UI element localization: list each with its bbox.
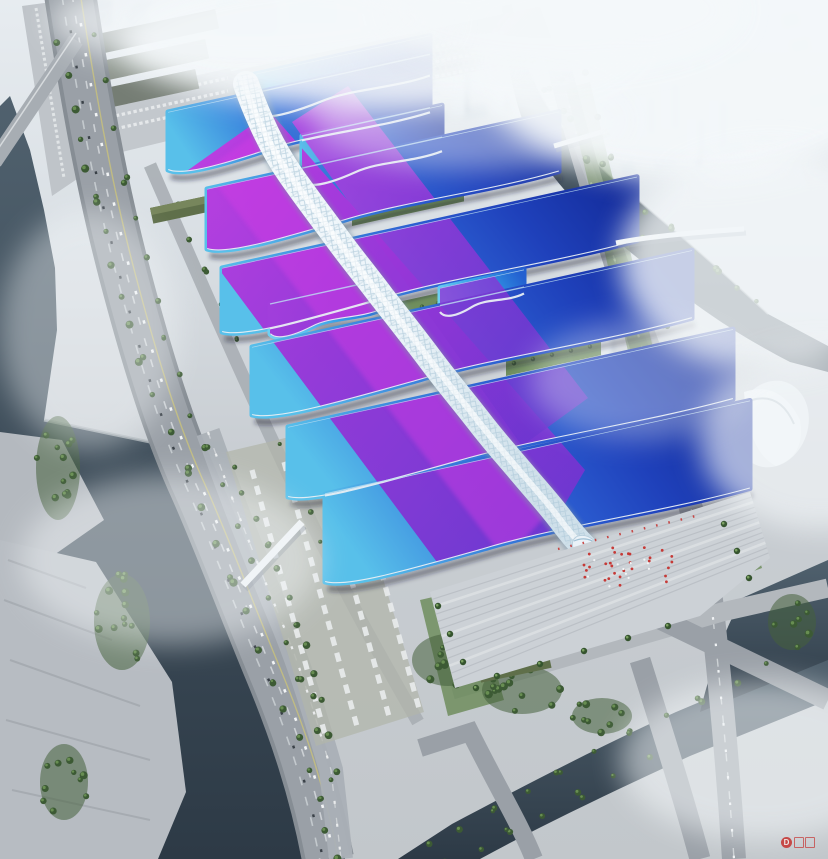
aerial-rendering-image: D — [0, 0, 828, 859]
scene-canvas — [0, 0, 828, 859]
